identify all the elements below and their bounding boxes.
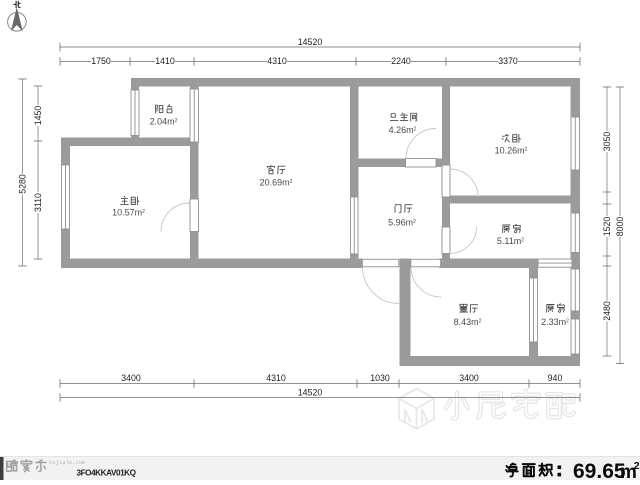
svg-text:10.57m2: 10.57m2 xyxy=(112,208,145,218)
svg-text:1750: 1750 xyxy=(91,56,111,66)
svg-text:14520: 14520 xyxy=(298,388,323,398)
svg-text:5280: 5280 xyxy=(18,174,28,194)
svg-text:3400: 3400 xyxy=(121,373,141,383)
svg-text:8.43m2: 8.43m2 xyxy=(454,317,482,327)
svg-text:14520: 14520 xyxy=(298,37,323,47)
svg-text:2: 2 xyxy=(634,460,640,472)
svg-text:2240: 2240 xyxy=(391,56,411,66)
svg-text:1410: 1410 xyxy=(155,56,175,66)
svg-text:5.11m2: 5.11m2 xyxy=(497,236,524,246)
svg-text:2480: 2480 xyxy=(602,301,612,321)
svg-text:3400: 3400 xyxy=(459,373,479,383)
svg-text:3050: 3050 xyxy=(602,132,612,152)
svg-text:kujiale.com: kujiale.com xyxy=(49,459,86,466)
svg-text:1450: 1450 xyxy=(33,106,43,126)
svg-text:4310: 4310 xyxy=(266,373,286,383)
svg-text:10.26m2: 10.26m2 xyxy=(495,146,528,156)
svg-text:8000: 8000 xyxy=(615,217,625,237)
svg-text:1520: 1520 xyxy=(602,217,612,237)
svg-text:20.69m2: 20.69m2 xyxy=(260,178,293,188)
svg-text:2.04m2: 2.04m2 xyxy=(150,117,178,127)
svg-text:3370: 3370 xyxy=(498,56,518,66)
svg-text:4.26m2: 4.26m2 xyxy=(389,125,417,135)
svg-text:1030: 1030 xyxy=(370,373,390,383)
svg-text:5.96m2: 5.96m2 xyxy=(388,218,416,228)
svg-text:940: 940 xyxy=(548,373,563,383)
svg-text:4310: 4310 xyxy=(267,56,287,66)
svg-text:69.65: 69.65 xyxy=(573,460,626,480)
svg-text:3110: 3110 xyxy=(33,193,43,212)
svg-text:3FO4KKAV01KQ: 3FO4KKAV01KQ xyxy=(77,469,137,478)
svg-text:2.33m2: 2.33m2 xyxy=(541,317,569,327)
